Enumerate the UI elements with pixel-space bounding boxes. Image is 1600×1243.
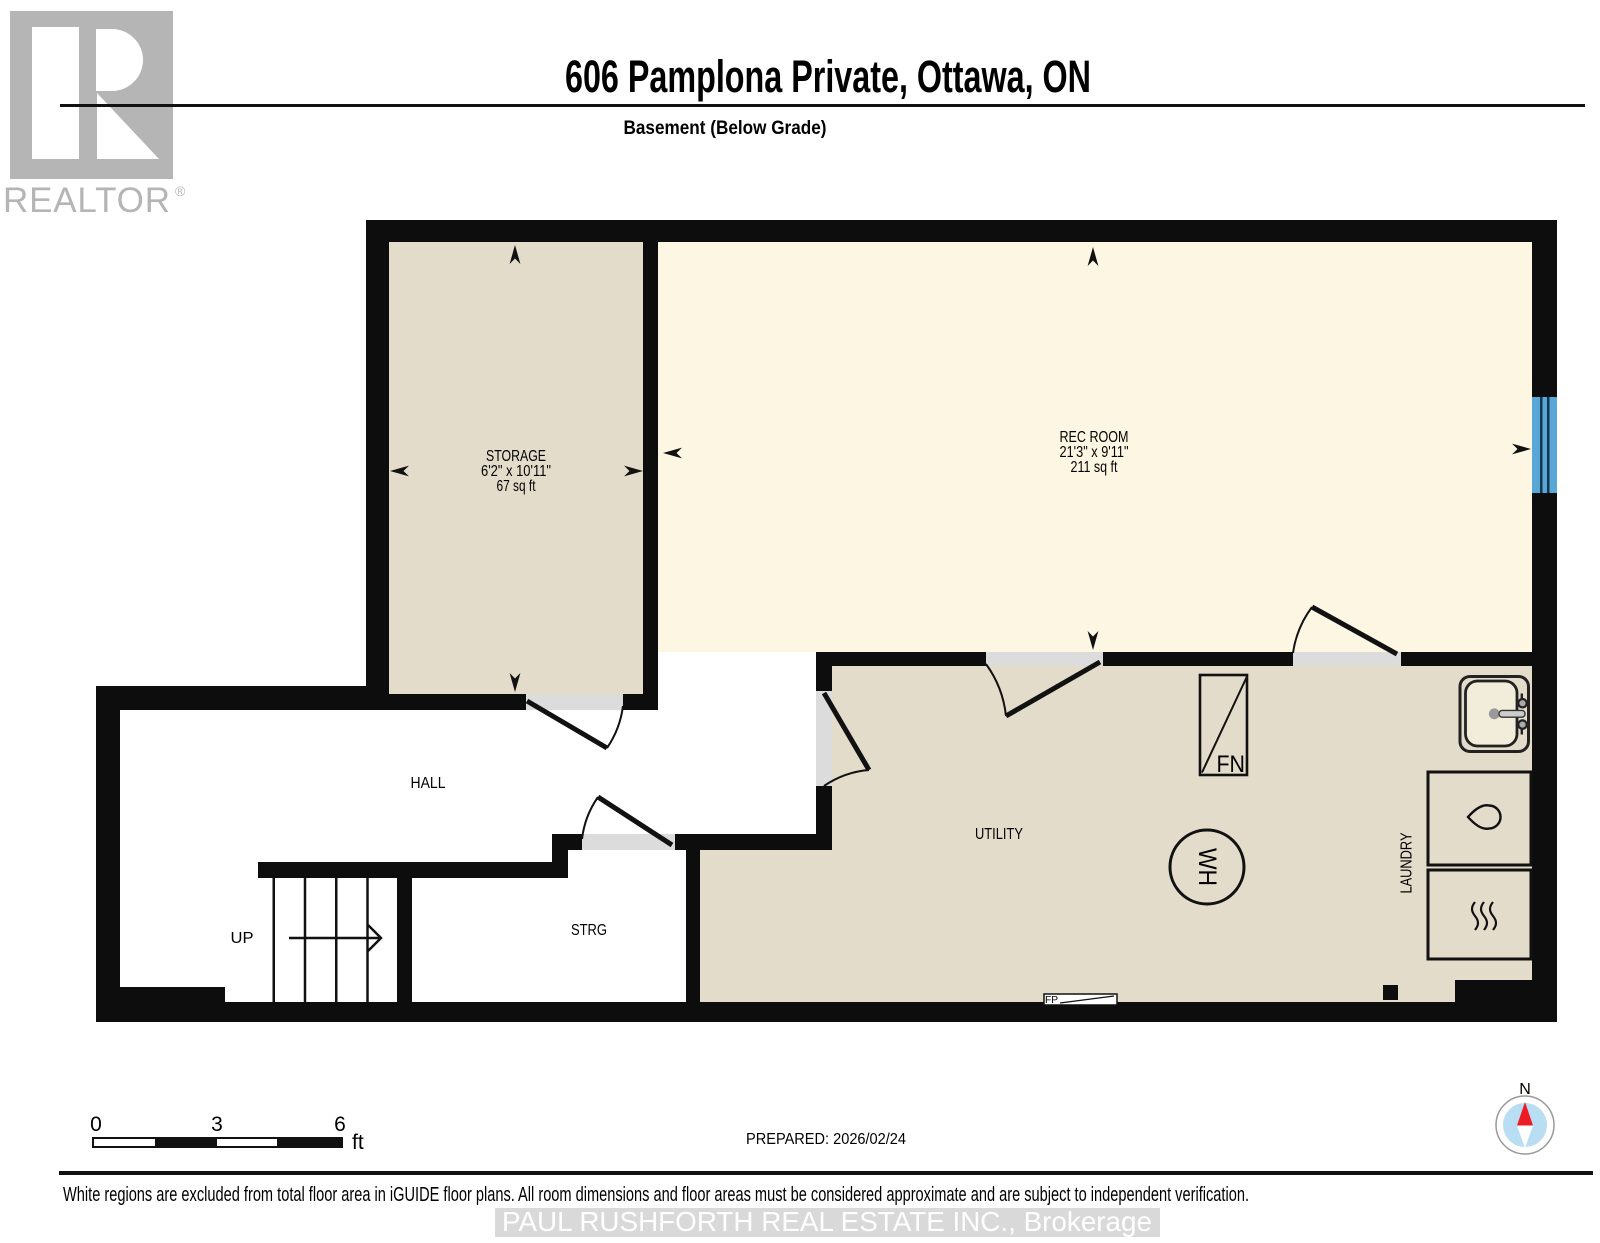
svg-text:Basement (Below Grade): Basement (Below Grade) <box>624 117 827 139</box>
svg-text:6: 6 <box>334 1113 346 1136</box>
svg-text:FP: FP <box>1045 994 1058 1006</box>
svg-text:N: N <box>1519 1081 1531 1098</box>
svg-text:FN: FN <box>1217 751 1246 778</box>
svg-text:211 sq ft: 211 sq ft <box>1071 459 1119 476</box>
svg-text:STRG: STRG <box>571 922 607 939</box>
svg-text:WH: WH <box>1193 848 1221 886</box>
svg-text:67 sq ft: 67 sq ft <box>497 478 537 495</box>
svg-text:PAUL RUSHFORTH REAL ESTATE INC: PAUL RUSHFORTH REAL ESTATE INC., Brokera… <box>502 1206 1152 1237</box>
svg-text:White regions are excluded fro: White regions are excluded from total fl… <box>63 1184 1249 1206</box>
svg-text:REALTOR: REALTOR <box>3 181 170 220</box>
svg-text:LAUNDRY: LAUNDRY <box>1399 833 1416 894</box>
svg-text:PREPARED: 2026/02/24: PREPARED: 2026/02/24 <box>746 1131 906 1148</box>
svg-text:HALL: HALL <box>411 775 446 792</box>
svg-text:0: 0 <box>90 1113 102 1136</box>
svg-text:606 Pamplona Private, Ottawa,: 606 Pamplona Private, Ottawa, ON <box>565 51 1091 102</box>
svg-text:UP: UP <box>231 930 254 947</box>
svg-text:UTILITY: UTILITY <box>975 826 1023 843</box>
svg-text:3: 3 <box>211 1113 223 1136</box>
svg-text:ft: ft <box>352 1131 364 1154</box>
svg-text:®: ® <box>175 183 186 199</box>
